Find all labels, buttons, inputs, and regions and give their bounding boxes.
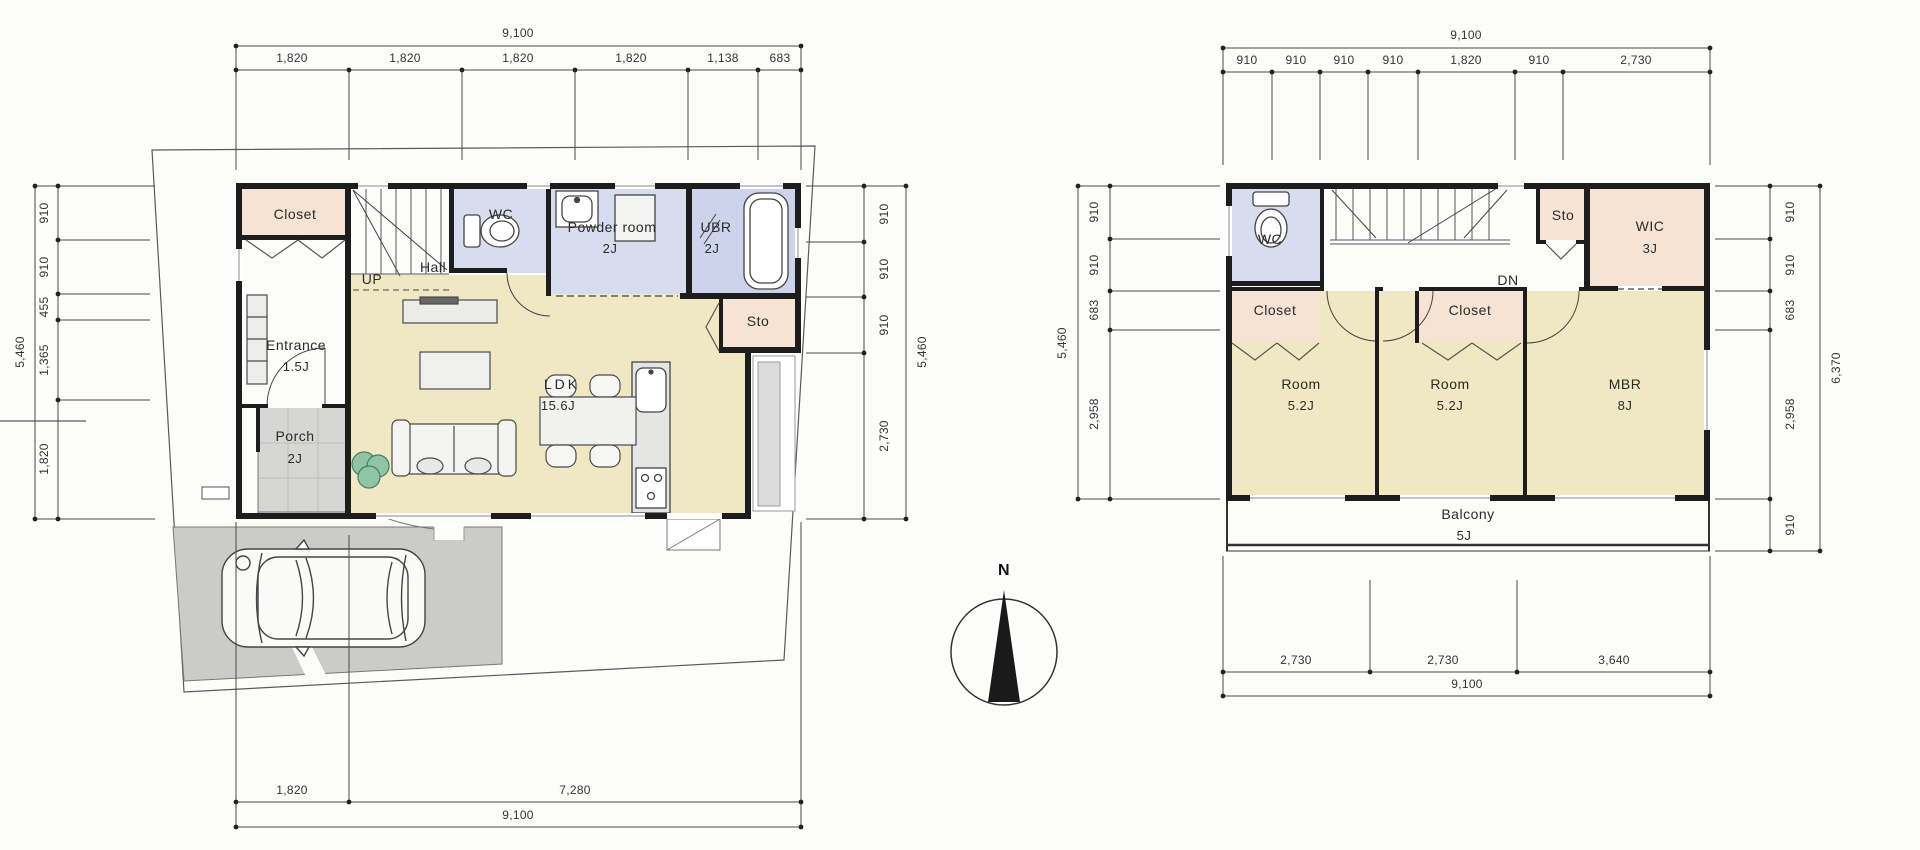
dim-f1-left-seg: 455 [37, 297, 51, 318]
dim-f1-left-total: 5,460 [13, 336, 27, 368]
dim-f1-right-seg: 2,730 [877, 420, 891, 452]
room-label-hall: Hall [420, 259, 446, 275]
room-label-sto-1f: Sto [747, 313, 770, 329]
room-size-ubr: 2J [705, 241, 720, 256]
dim-f2-top-total: 9,100 [1450, 28, 1482, 42]
floor2-stairs [1330, 186, 1510, 244]
dim-f1-right-seg: 910 [877, 204, 891, 225]
room-label-wic: WIC [1636, 218, 1665, 234]
room-size-entrance: 1.5J [283, 359, 310, 374]
dim-f2-bottom-seg: 3,640 [1598, 653, 1630, 667]
dim-f1-right-total: 5,460 [915, 336, 929, 368]
dim-f2-bottom-seg: 2,730 [1280, 653, 1312, 667]
dim-f2-top-seg: 910 [1286, 53, 1307, 67]
dim-f2-right-seg: 683 [1783, 300, 1797, 321]
dim-f2-bottom-seg: 2,730 [1427, 653, 1459, 667]
kitchen-counter [632, 362, 670, 513]
back-door [667, 519, 720, 550]
room-size-ldk: 15.6J [541, 398, 575, 413]
room-label-ldk: LDK [544, 376, 580, 392]
car-icon [222, 540, 425, 656]
room-size-mbr: 8J [1618, 398, 1633, 413]
bathtub-icon [744, 193, 788, 289]
dim-f2-right-seg: 910 [1783, 515, 1797, 536]
dim-f1-top-seg: 1,820 [615, 51, 647, 65]
room-label-room1: Room [1281, 376, 1320, 392]
dim-f1-right-seg: 910 [877, 259, 891, 280]
room-size-powder: 2J [603, 241, 618, 256]
compass-north-label: N [998, 562, 1010, 580]
room-label-balcony: Balcony [1441, 506, 1494, 522]
dim-f2-left-seg: 910 [1087, 255, 1101, 276]
dim-f1-top-seg: 683 [770, 51, 791, 65]
dim-f1-bottom-seg: 7,280 [559, 783, 591, 797]
room-label-entrance: Entrance [266, 337, 326, 353]
stairs-up-label: UP [362, 271, 382, 287]
room-label-closet1-2f: Closet [1254, 302, 1297, 318]
dim-f2-top-seg: 1,820 [1450, 53, 1482, 67]
room-label-room2: Room [1430, 376, 1469, 392]
dim-f2-right-seg: 2,958 [1783, 398, 1797, 430]
room-label-closet2-2f: Closet [1449, 302, 1492, 318]
dim-f1-top-seg: 1,820 [389, 51, 421, 65]
dim-f2-right-seg: 910 [1783, 202, 1797, 223]
room-label-sto-2f: Sto [1552, 207, 1575, 223]
dim-f2-top-seg: 910 [1237, 53, 1258, 67]
dim-f1-left-seg: 910 [37, 257, 51, 278]
dim-f1-left-seg: 910 [37, 203, 51, 224]
floor1-side-deck [753, 356, 795, 511]
room-size-wic: 3J [1643, 241, 1658, 256]
dim-f2-left-seg: 2,958 [1087, 398, 1101, 430]
room-label-wc-1f: WC [489, 206, 513, 222]
dim-f1-bottom-seg: 1,820 [276, 783, 308, 797]
sofa [392, 420, 516, 476]
compass-icon [951, 590, 1057, 705]
dim-f2-bottom-total: 9,100 [1451, 677, 1483, 691]
tv [420, 297, 458, 304]
room-size-room2: 5.2J [1437, 398, 1464, 413]
dim-f2-left-seg: 910 [1087, 202, 1101, 223]
room-size-porch: 2J [288, 451, 303, 466]
room-label-ubr: UBR [700, 219, 731, 235]
dim-f2-top-seg: 910 [1383, 53, 1404, 67]
dim-f1-bottom-total: 9,100 [502, 808, 534, 822]
dim-f1-top-seg: 1,138 [707, 51, 739, 65]
floorplan-canvas: Closet WC Powder room 2J UBR 2J Hall UP … [0, 0, 1920, 850]
dim-f2-top-seg: 910 [1334, 53, 1355, 67]
dim-f2-right-seg: 910 [1783, 255, 1797, 276]
dim-f2-top-seg: 910 [1529, 53, 1550, 67]
room-label-porch: Porch [275, 428, 314, 444]
dim-f2-top-seg: 2,730 [1620, 53, 1652, 67]
dim-f1-left-seg: 1,820 [37, 443, 51, 475]
room-size-room1: 5.2J [1288, 398, 1315, 413]
dim-f1-top-seg: 1,820 [502, 51, 534, 65]
stairs-dn-label: DN [1497, 272, 1518, 288]
room-label-wc-2f: WC [1258, 231, 1282, 247]
dim-f1-right-seg: 910 [877, 315, 891, 336]
dim-f1-top-seg: 1,820 [276, 51, 308, 65]
room-label-closet-1f: Closet [274, 206, 317, 222]
coffee-table [420, 352, 490, 389]
dim-f2-right-total: 6,370 [1829, 352, 1843, 384]
dim-f1-top-total: 9,100 [502, 26, 534, 40]
floor2-room-fills [1232, 189, 1704, 498]
room-label-powder: Powder room [568, 219, 657, 235]
dim-f1-left-seg: 1,365 [37, 344, 51, 376]
room-label-mbr: MBR [1609, 376, 1642, 392]
dim-f2-left-total: 5,460 [1055, 327, 1069, 359]
floorplan-drawing [0, 0, 1920, 850]
dim-f2-left-seg: 683 [1087, 300, 1101, 321]
room-size-balcony: 5J [1457, 528, 1472, 543]
shoe-cabinet [247, 295, 267, 384]
